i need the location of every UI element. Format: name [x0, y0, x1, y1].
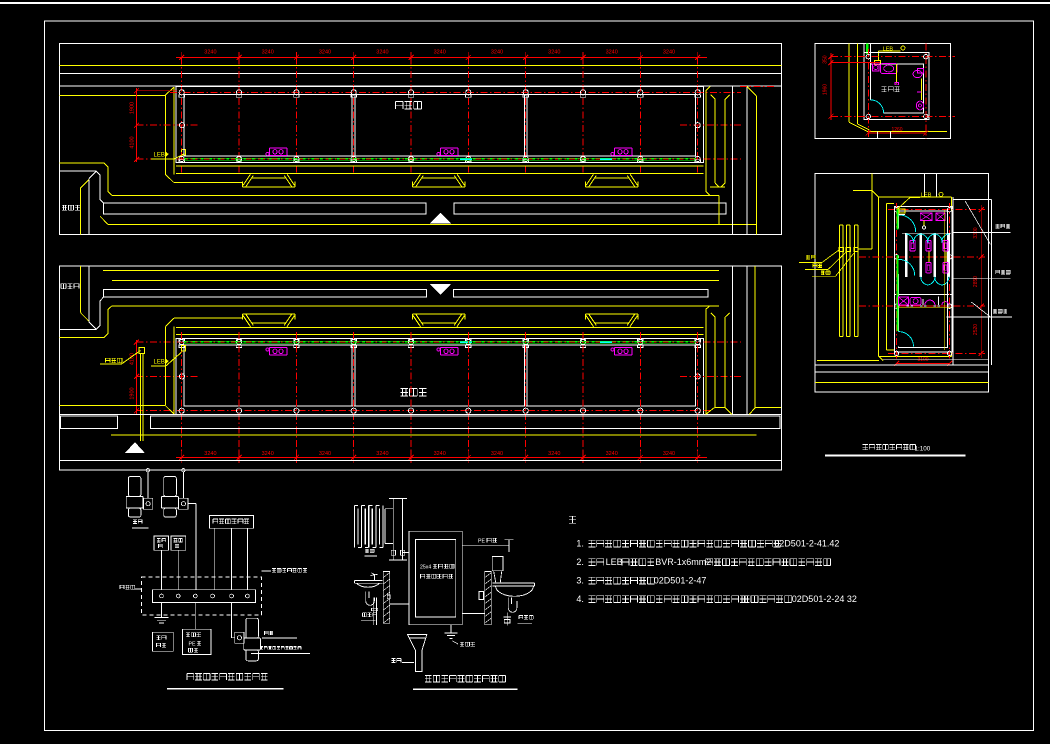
svg-text:02D501-2-24 32: 02D501-2-24 32 [792, 594, 857, 604]
svg-text:3240: 3240 [434, 50, 446, 56]
svg-text:LEB: LEB [606, 557, 623, 567]
svg-text:3240: 3240 [491, 50, 503, 56]
svg-text:3240: 3240 [376, 451, 388, 457]
svg-text:25x4: 25x4 [420, 565, 431, 571]
svg-text:4.: 4. [576, 594, 584, 604]
svg-text:3240: 3240 [434, 451, 446, 457]
svg-text:3240: 3240 [376, 50, 388, 56]
svg-text:2.: 2. [576, 557, 584, 567]
svg-text:LEB: LEB [154, 360, 165, 366]
svg-text:BVR-1x6mm2: BVR-1x6mm2 [655, 557, 711, 567]
svg-text:350: 350 [823, 55, 829, 64]
svg-text:1:100: 1:100 [915, 445, 931, 452]
svg-text:3240: 3240 [663, 451, 675, 457]
svg-text:3.: 3. [576, 576, 584, 586]
svg-text:02D501-2-41.42: 02D501-2-41.42 [774, 539, 839, 549]
svg-text:02D501-2-47: 02D501-2-47 [654, 576, 707, 586]
svg-text:3240: 3240 [319, 50, 331, 56]
svg-text:3240: 3240 [319, 451, 331, 457]
svg-text:LEB: LEB [921, 192, 932, 198]
svg-text:1900: 1900 [130, 387, 136, 399]
svg-text:PE: PE [478, 538, 485, 544]
svg-text:2520: 2520 [973, 324, 979, 335]
svg-text:3240: 3240 [606, 50, 618, 56]
svg-text:3240: 3240 [663, 50, 675, 56]
svg-text:PE: PE [189, 642, 196, 648]
svg-text:3240: 3240 [548, 451, 560, 457]
svg-text:4100: 4100 [130, 136, 136, 148]
svg-text:3240: 3240 [606, 451, 618, 457]
svg-text:3300: 3300 [973, 227, 979, 238]
svg-text:3240: 3240 [262, 50, 274, 56]
svg-text:3240: 3240 [204, 451, 216, 457]
svg-text:3240: 3240 [204, 50, 216, 56]
svg-text:2850: 2850 [973, 276, 979, 287]
svg-text:1260: 1260 [891, 127, 902, 133]
svg-text:3100: 3100 [917, 357, 928, 363]
svg-text:1900: 1900 [130, 102, 136, 114]
svg-text:3240: 3240 [262, 451, 274, 457]
svg-text:3240: 3240 [548, 50, 560, 56]
svg-text:1960: 1960 [823, 84, 829, 95]
svg-text:3240: 3240 [491, 451, 503, 457]
svg-text:LEB: LEB [154, 153, 165, 159]
svg-text:1.: 1. [576, 539, 584, 549]
